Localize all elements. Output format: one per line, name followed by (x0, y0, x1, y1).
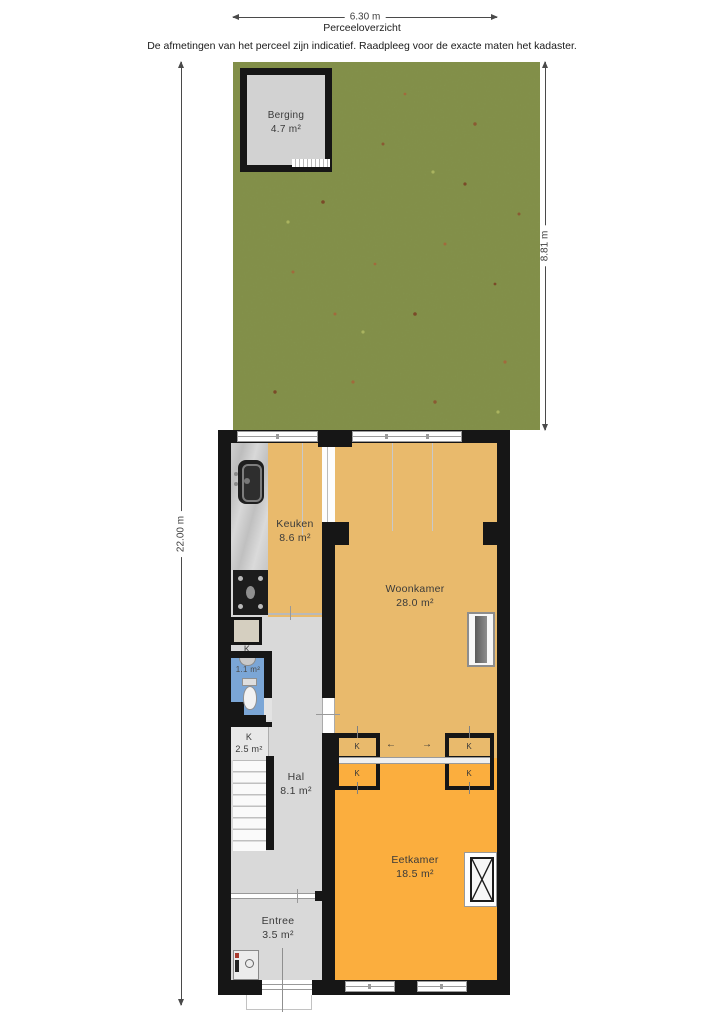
door-tick (357, 726, 358, 738)
door-line (322, 698, 323, 733)
shed-door-opening (292, 159, 330, 167)
staircase (233, 760, 266, 851)
door-tick (316, 714, 340, 715)
wall (231, 651, 272, 658)
kitchen-name: Keuken (276, 517, 313, 531)
door-tick (469, 726, 470, 738)
radiator-icon (467, 612, 495, 667)
door-tick (297, 889, 298, 903)
total-depth-dimension: 22.00 m (177, 62, 186, 1005)
wall (264, 658, 272, 698)
door-tick (357, 782, 358, 794)
wall (318, 430, 352, 447)
toilet-icon (242, 678, 257, 686)
arrow-up-icon (542, 61, 548, 68)
porch-step (246, 995, 312, 1010)
sliding-door-track (339, 757, 490, 764)
front-door-opening (262, 980, 312, 995)
toilet-bowl-icon (243, 686, 257, 710)
diningroom-name: Eetkamer (391, 853, 438, 867)
window-guide-line (392, 443, 393, 531)
sink-icon (238, 460, 264, 504)
sliding-door-left-arrow-icon: ← (386, 739, 396, 750)
closet-label: K (354, 742, 359, 751)
garden: Berging 4.7 m² (233, 62, 540, 430)
total-depth-label: 22.00 m (176, 510, 187, 556)
window-guide-line (432, 443, 433, 531)
closet-label: K (466, 742, 471, 751)
shed: Berging 4.7 m² (240, 68, 332, 172)
wall (322, 522, 335, 698)
diningroom-area: 18.5 m² (391, 867, 438, 881)
floorplan-canvas: 6.30 m Perceeloverzicht De afmetingen va… (0, 0, 724, 1024)
entrance-area: 3.5 m² (262, 928, 295, 942)
chimney-breast (483, 522, 497, 545)
chimney-icon (464, 852, 497, 907)
page-title: Perceeloverzicht (0, 22, 724, 34)
plot-width-dimension: 6.30 m (233, 13, 497, 22)
chimney-breast (335, 522, 349, 545)
hall-name: Hal (280, 770, 312, 784)
toilet-area-label: 1.1 m² (236, 665, 260, 675)
duct (231, 702, 244, 715)
sliding-door-right-arrow-icon: → (422, 739, 432, 750)
door-tick (469, 782, 470, 794)
door-line (327, 447, 328, 522)
meter-cabinet-icon (233, 950, 259, 980)
garden-depth-label: 8.81 m (540, 226, 551, 267)
entrance-name: Entree (262, 914, 295, 928)
window (345, 981, 395, 992)
wall (322, 733, 335, 982)
closet-label: K (466, 769, 471, 778)
arrow-up-icon (178, 61, 184, 68)
plot-width-label: 6.30 m (345, 12, 386, 23)
door-line (334, 698, 335, 733)
livingroom-name: Woonkamer (385, 582, 444, 596)
garden-depth-dimension: 8.81 m (541, 62, 550, 430)
shed-name: Berging (268, 109, 305, 123)
closet-box (231, 617, 262, 645)
arrow-down-icon (542, 424, 548, 431)
kitchen-living-opening (322, 447, 335, 522)
livingroom-area: 28.0 m² (385, 596, 444, 610)
hall-area: 8.1 m² (280, 784, 312, 798)
house: K 1.1 m² K 2.5 m² (218, 430, 510, 995)
shed-area: 4.7 m² (268, 123, 305, 137)
glass-partition (231, 893, 318, 899)
kitchen-area: 8.6 m² (276, 531, 313, 545)
arrow-left-icon (232, 14, 239, 20)
entry-path-line (282, 948, 283, 1012)
arrow-down-icon (178, 999, 184, 1006)
window (352, 431, 462, 442)
disclaimer-text: De afmetingen van het perceel zijn indic… (0, 40, 724, 52)
window (417, 981, 467, 992)
closet-room-area: 2.5 m² (235, 743, 262, 755)
closet-label: K (354, 769, 359, 778)
door-threshold (268, 613, 322, 615)
wall (266, 756, 274, 850)
arrow-right-icon (491, 14, 498, 20)
door-tick (290, 606, 291, 620)
stove-icon (233, 570, 268, 615)
wall (231, 715, 266, 722)
closet-room-label: K (235, 731, 262, 743)
window (237, 431, 318, 442)
